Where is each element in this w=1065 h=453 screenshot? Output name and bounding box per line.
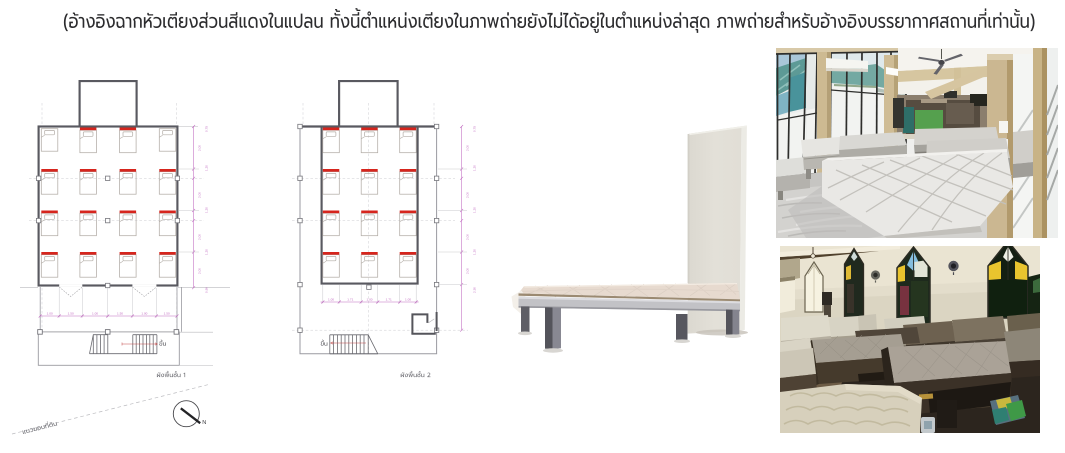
svg-text:2.00: 2.00	[198, 192, 202, 198]
svg-text:2.00: 2.00	[466, 192, 470, 198]
svg-text:1.00: 1.00	[92, 312, 98, 316]
svg-text:1.00: 1.00	[405, 298, 411, 302]
svg-text:1.20: 1.20	[205, 165, 209, 171]
svg-text:2.00: 2.00	[466, 268, 470, 274]
svg-text:1.71: 1.71	[347, 298, 353, 302]
svg-text:1.20: 1.20	[205, 207, 209, 213]
svg-text:N: N	[202, 420, 206, 426]
svg-text:2.00: 2.00	[466, 145, 470, 151]
svg-text:0.75: 0.75	[205, 126, 209, 132]
svg-text:1.20: 1.20	[473, 249, 477, 255]
svg-text:1.00: 1.00	[328, 298, 334, 302]
svg-text:1.00: 1.00	[141, 312, 147, 316]
svg-text:1.71: 1.71	[386, 298, 392, 302]
svg-text:1.50: 1.50	[117, 312, 123, 316]
svg-text:2.30: 2.30	[473, 287, 477, 293]
svg-text:1.00: 1.00	[47, 312, 53, 316]
svg-text:2.00: 2.00	[198, 234, 202, 240]
svg-text:2.00: 2.00	[466, 234, 470, 240]
svg-text:0.90: 0.90	[205, 287, 209, 293]
svg-text:1.20: 1.20	[473, 165, 477, 171]
svg-text:0.75: 0.75	[473, 126, 477, 132]
svg-text:1.00: 1.00	[366, 298, 372, 302]
svg-text:1.50: 1.50	[164, 312, 170, 316]
svg-text:1.50: 1.50	[68, 312, 74, 316]
svg-text:2.00: 2.00	[198, 145, 202, 151]
svg-text:1.20: 1.20	[473, 207, 477, 213]
svg-text:2.00: 2.00	[198, 268, 202, 274]
svg-text:1.20: 1.20	[205, 249, 209, 255]
